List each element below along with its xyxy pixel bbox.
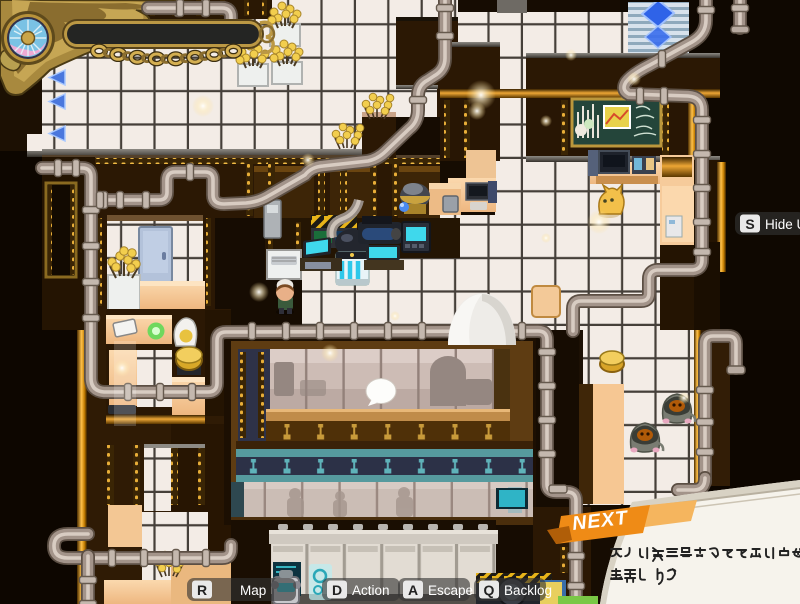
svg-text:S: S xyxy=(745,216,754,232)
svg-text:Q: Q xyxy=(484,582,495,598)
svg-text:Backlog: Backlog xyxy=(504,583,552,598)
svg-text:Action: Action xyxy=(352,583,390,598)
svg-text:D: D xyxy=(332,582,342,598)
svg-text:Hide UI: Hide UI xyxy=(765,217,800,232)
svg-text:Map: Map xyxy=(240,583,266,598)
svg-text:A: A xyxy=(408,582,418,598)
svg-text:R: R xyxy=(197,582,207,598)
svg-text:Escape: Escape xyxy=(428,583,473,598)
